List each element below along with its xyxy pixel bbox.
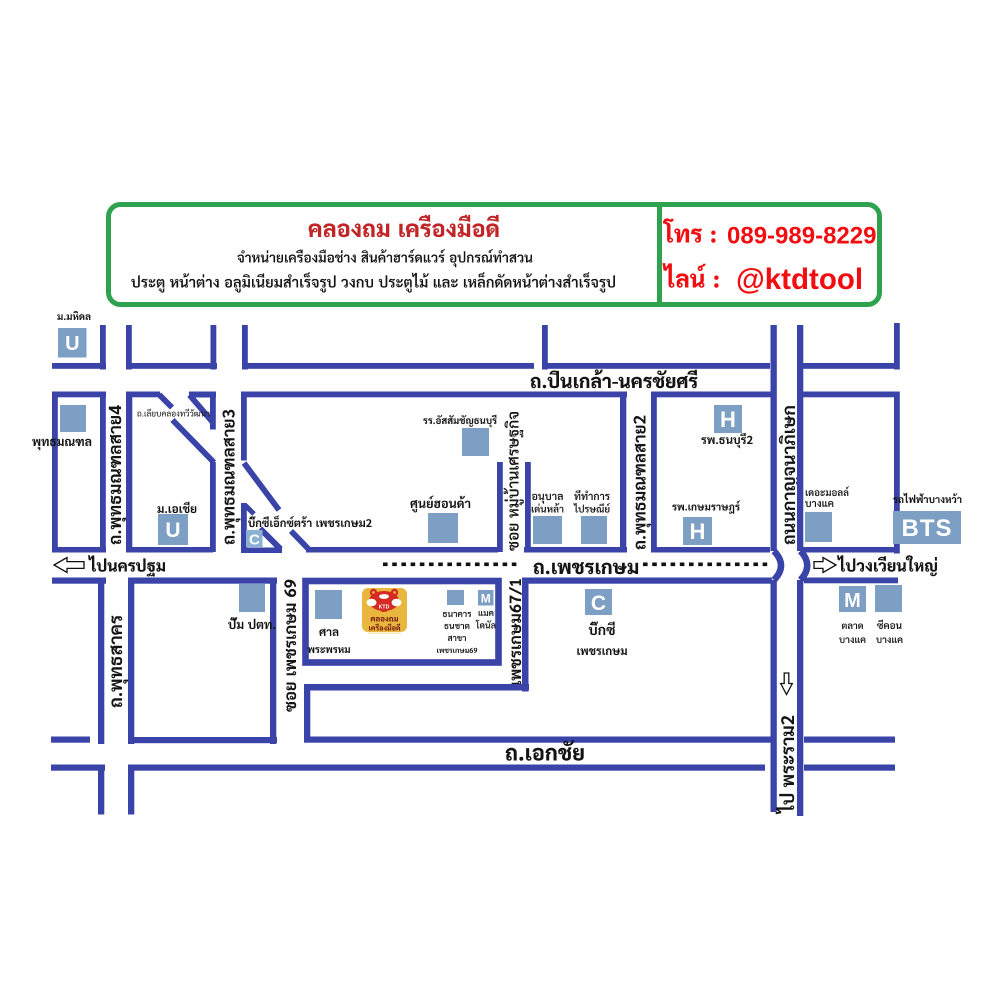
svg-text:089-989-8229: 089-989-8229 [727,223,876,250]
svg-text:C: C [249,532,260,549]
svg-text:C: C [591,592,606,615]
svg-text:@ktdtool: @ktdtool [736,263,863,296]
svg-text:BTS: BTS [902,515,953,542]
svg-text:KTD: KTD [379,604,390,610]
svg-text:M: M [844,590,861,612]
svg-text:H: H [720,407,736,432]
svg-text:U: U [65,333,79,355]
svg-text:H: H [690,519,706,544]
svg-text:U: U [165,519,180,542]
svg-text:M: M [481,592,491,606]
